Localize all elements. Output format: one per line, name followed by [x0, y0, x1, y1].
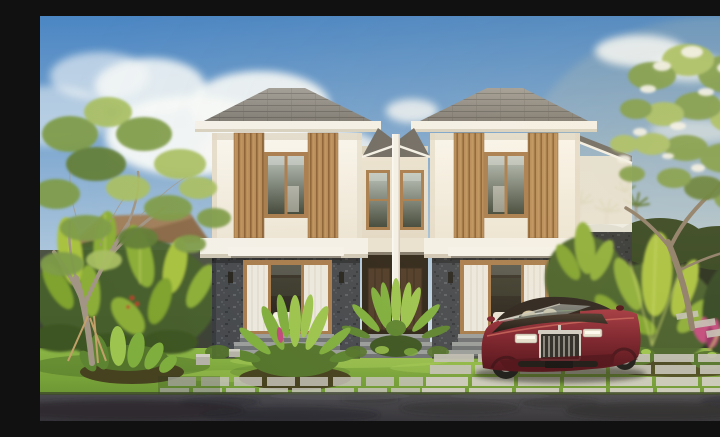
photo: Photorealistic render of a symmetrical t… — [40, 16, 720, 421]
warm-light-overlay — [40, 16, 720, 421]
scene-image — [40, 16, 720, 421]
